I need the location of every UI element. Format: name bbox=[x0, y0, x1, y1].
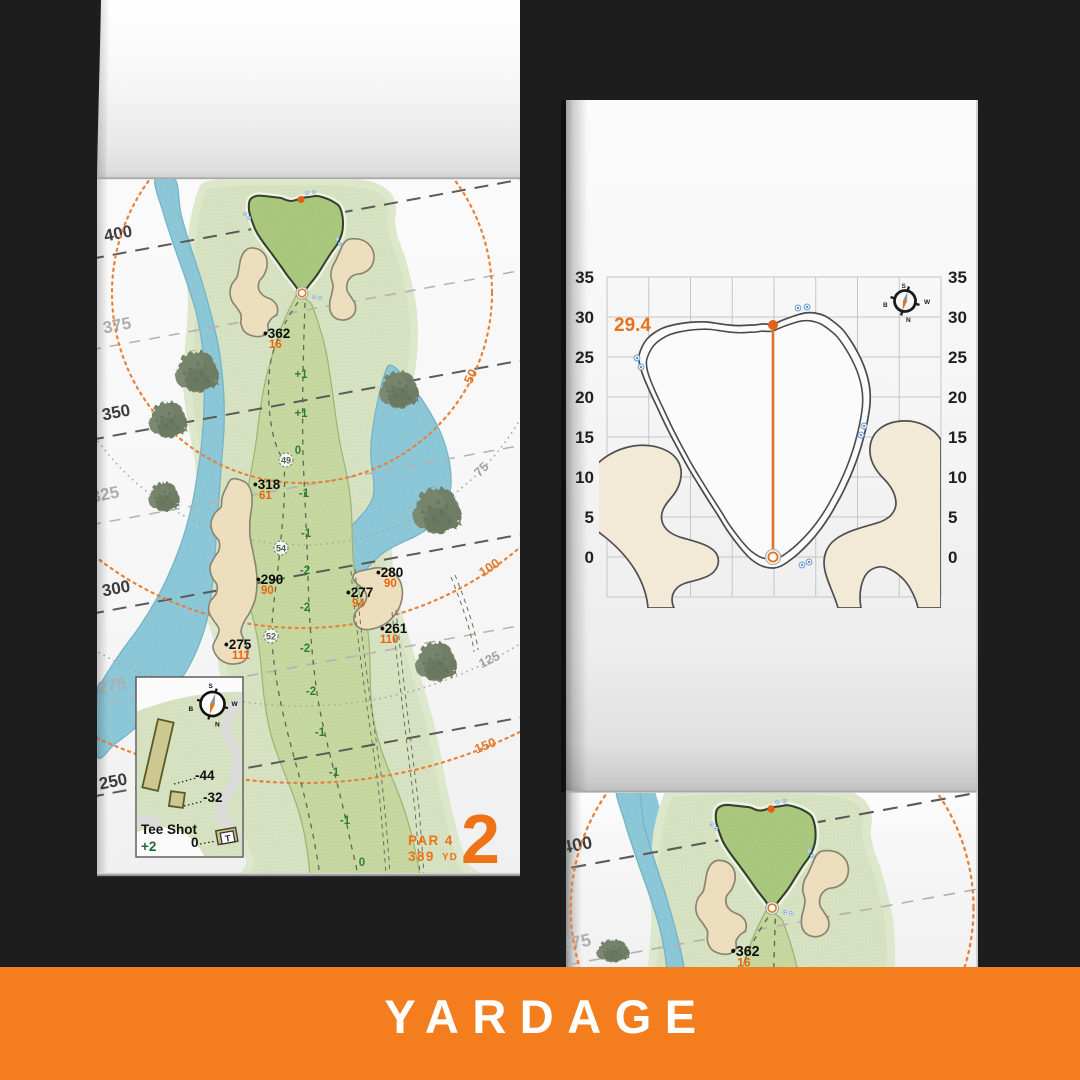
svg-text:5: 5 bbox=[948, 508, 957, 527]
svg-text:0: 0 bbox=[948, 548, 957, 567]
svg-text:29.4: 29.4 bbox=[614, 315, 651, 336]
svg-text:W: W bbox=[232, 701, 239, 708]
svg-text:0: 0 bbox=[191, 835, 199, 850]
svg-text:10: 10 bbox=[575, 468, 594, 487]
svg-text:35: 35 bbox=[575, 268, 594, 287]
svg-text:0: 0 bbox=[585, 548, 594, 567]
svg-text:389: 389 bbox=[408, 849, 435, 864]
svg-text:-32: -32 bbox=[203, 790, 223, 805]
svg-text:30: 30 bbox=[948, 308, 967, 327]
svg-text:15: 15 bbox=[575, 428, 594, 447]
svg-text:Tee Shot: Tee Shot bbox=[141, 822, 198, 837]
svg-text:PAR 4: PAR 4 bbox=[408, 833, 454, 848]
svg-text:YD: YD bbox=[442, 852, 458, 863]
svg-text:20: 20 bbox=[575, 388, 594, 407]
svg-text:N: N bbox=[906, 317, 911, 324]
svg-text:30: 30 bbox=[575, 308, 594, 327]
svg-text:S: S bbox=[902, 283, 907, 290]
svg-text:5: 5 bbox=[585, 508, 594, 527]
svg-text:20: 20 bbox=[948, 388, 967, 407]
svg-text:S: S bbox=[209, 683, 214, 690]
svg-text:B: B bbox=[883, 302, 888, 309]
svg-text:10: 10 bbox=[948, 468, 967, 487]
svg-text:YARDAGE: YARDAGE bbox=[384, 990, 709, 1043]
svg-text:N: N bbox=[215, 722, 220, 729]
svg-text:W: W bbox=[924, 299, 931, 306]
svg-text:25: 25 bbox=[948, 348, 967, 367]
svg-text:35: 35 bbox=[948, 268, 967, 287]
svg-text:15: 15 bbox=[948, 428, 967, 447]
svg-text:2: 2 bbox=[461, 800, 500, 878]
svg-text:B: B bbox=[189, 706, 194, 713]
svg-text:25: 25 bbox=[575, 348, 594, 367]
svg-text:-44: -44 bbox=[195, 768, 215, 783]
svg-text:+2: +2 bbox=[141, 839, 156, 854]
